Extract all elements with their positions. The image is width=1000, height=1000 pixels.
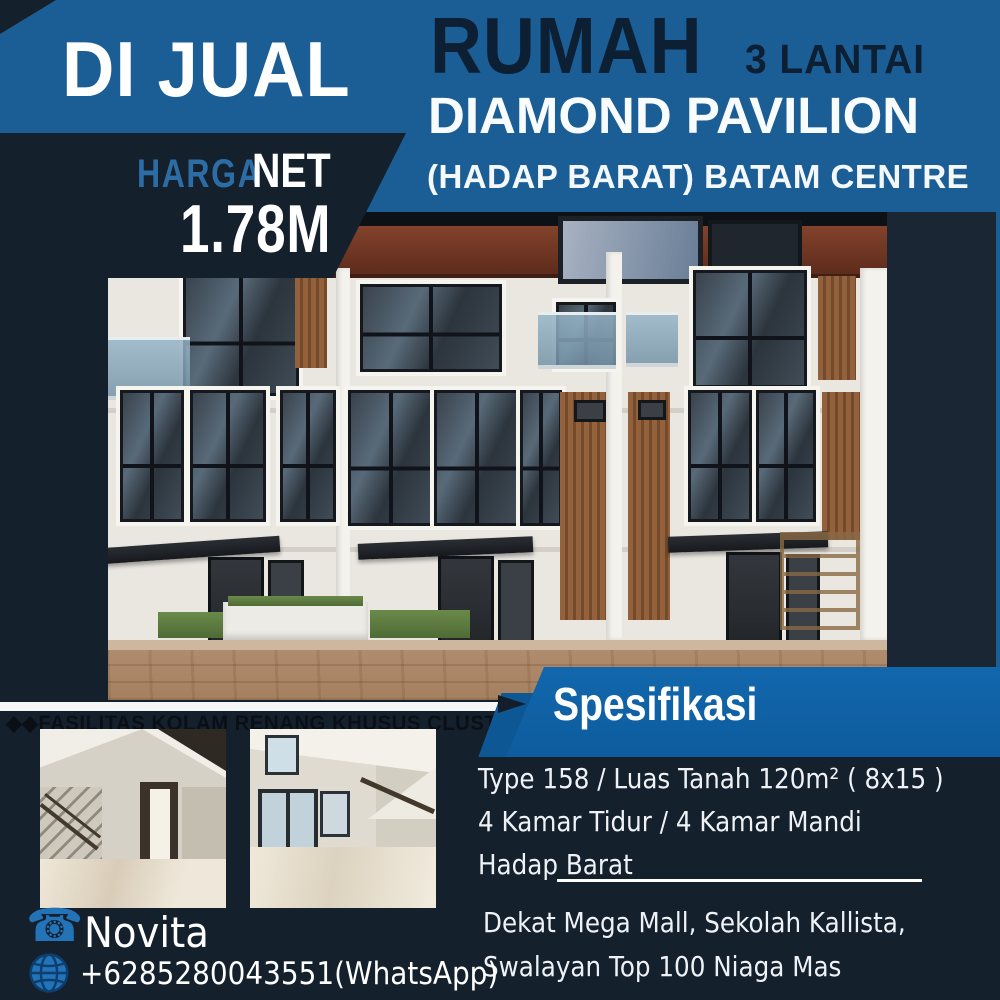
planter-grass — [228, 596, 363, 606]
property-flyer: HARGA NET 1.78M DI JUAL RUMAH 3 LANTAI D… — [0, 0, 1000, 1000]
wall-opening — [182, 787, 226, 869]
header-location: (HADAP BARAT) BATAM CENTRE — [427, 158, 969, 196]
right-margin-panel — [887, 212, 996, 668]
clerestory-window — [265, 735, 299, 775]
wood-panel — [295, 278, 327, 368]
header-floors: 3 LANTAI — [745, 36, 925, 83]
wood-screen — [560, 392, 606, 620]
spec-line-facing: Hadap Barat — [478, 848, 633, 881]
window — [693, 270, 807, 388]
vent-window — [574, 400, 606, 422]
window — [190, 390, 266, 522]
doorway-light — [150, 789, 170, 861]
header-title: RUMAH — [430, 0, 702, 92]
window — [120, 390, 184, 522]
right-edge-accent — [996, 212, 1000, 668]
pilaster — [860, 268, 887, 640]
nearby-line-1: Dekat Mega Mall, Sekolah Kallista, — [483, 906, 906, 939]
balcony-glass — [626, 312, 678, 367]
spec-line-type: Type 158 / Luas Tanah 120m² ( 8x15 ) — [478, 762, 944, 795]
tile-floor — [250, 847, 436, 908]
window — [320, 791, 350, 837]
window — [756, 390, 816, 522]
divider-strip — [0, 702, 536, 711]
construction-ladder — [780, 532, 860, 630]
window — [434, 390, 520, 526]
side-window — [498, 560, 534, 646]
contact-name: Novita — [84, 908, 209, 957]
window — [258, 789, 318, 855]
spec-divider-line — [557, 879, 922, 882]
vent-window — [638, 400, 666, 420]
globe-icon — [28, 952, 70, 994]
balcony-glass — [538, 312, 616, 369]
wood-panel — [818, 276, 856, 380]
main-exterior-photo — [108, 212, 887, 700]
grass-patch — [158, 612, 226, 638]
header-project: DIAMOND PAVILION — [428, 86, 919, 145]
grass-patch — [370, 610, 470, 638]
spec-line-rooms: 4 Kamar Tidur / 4 Kamar Mandi — [478, 805, 862, 838]
entry-door — [726, 552, 782, 646]
contact-phone: +6285280043551(WhatsApp) — [80, 956, 498, 992]
interior-photo-2 — [250, 729, 436, 908]
spesifikasi-heading: Spesifikasi — [553, 677, 757, 731]
telephone-icon: ☎ — [26, 898, 83, 952]
spesifikasi-banner: Spesifikasi — [500, 667, 1000, 757]
window — [280, 390, 336, 522]
interior-photo-1 — [40, 729, 226, 908]
window — [688, 390, 752, 522]
window — [360, 284, 502, 372]
skylight-panel — [558, 216, 703, 284]
nearby-line-2: Swalayan Top 100 Niaga Mas — [483, 950, 841, 983]
wood-screen — [628, 392, 670, 620]
wood-panel — [822, 392, 860, 540]
window — [183, 272, 299, 396]
window — [348, 390, 434, 526]
badge-di-jual: DI JUAL — [62, 24, 351, 115]
window — [520, 390, 562, 526]
planter-wall — [223, 602, 368, 640]
price-value: 1.78M — [180, 190, 331, 268]
